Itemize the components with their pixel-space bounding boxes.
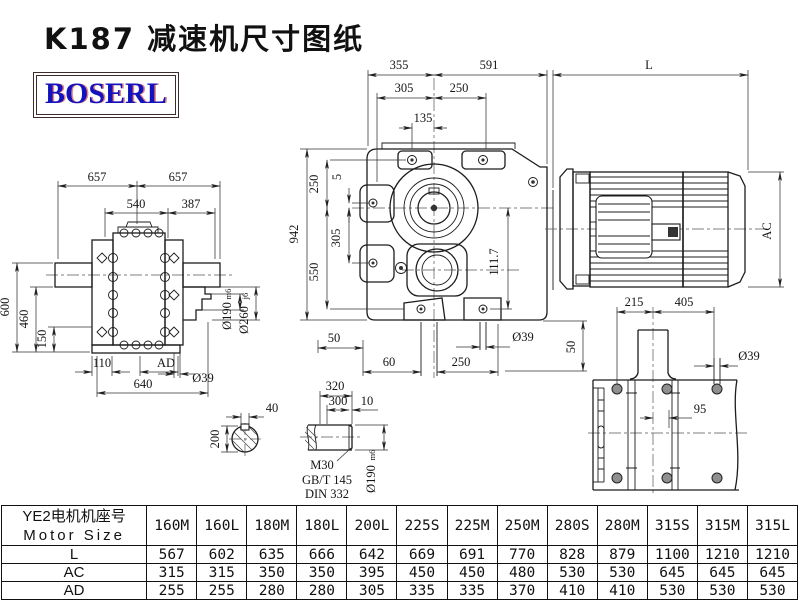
dim-150: 150 <box>35 330 49 349</box>
dim-460: 460 <box>17 310 31 329</box>
col-header-315M: 315M <box>697 506 747 546</box>
cell-L-225S: 669 <box>397 546 447 564</box>
dim-40: 40 <box>266 401 279 415</box>
row-header-AC: AC <box>2 564 147 582</box>
cell-AD-250M: 370 <box>497 582 547 600</box>
cell-AC-315M: 645 <box>697 564 747 582</box>
dim-540: 540 <box>127 197 146 211</box>
cell-AD-315L: 530 <box>747 582 797 600</box>
front-view-dimensions: 355 591 L 305 250 135 942 2 <box>287 58 748 376</box>
cell-L-160M: 567 <box>147 546 197 564</box>
row-header-L: L <box>2 546 147 564</box>
col-header-315S: 315S <box>647 506 697 546</box>
col-header-250M: 250M <box>497 506 547 546</box>
dim-657-left: 657 <box>88 170 107 184</box>
drawing-sheet: K187 减速机尺寸图纸 BOSERL <box>0 0 800 601</box>
dim-405: 405 <box>675 295 694 309</box>
dim-50-left: 50 <box>328 331 341 345</box>
dim-phi190-fit: m6 <box>223 289 233 300</box>
base-view: 215 405 Ø39 95 <box>588 295 760 496</box>
dim-135: 135 <box>414 111 433 125</box>
cell-AD-225S: 335 <box>397 582 447 600</box>
dim-305-vert: 305 <box>329 229 343 248</box>
dim-640: 640 <box>134 377 153 391</box>
cell-L-315M: 1210 <box>697 546 747 564</box>
cell-AD-200L: 305 <box>347 582 397 600</box>
cell-AC-180L: 350 <box>297 564 347 582</box>
left-view: 657 657 540 387 600 460 150 <box>0 170 260 397</box>
cell-L-280M: 879 <box>597 546 647 564</box>
cell-L-160L: 602 <box>197 546 247 564</box>
dim-300: 300 <box>329 394 348 408</box>
cell-AC-160M: 315 <box>147 564 197 582</box>
cell-AC-280M: 530 <box>597 564 647 582</box>
cell-AC-315L: 645 <box>747 564 797 582</box>
dim-550: 550 <box>307 263 321 282</box>
col-header-200L: 200L <box>347 506 397 546</box>
cell-AC-250M: 480 <box>497 564 547 582</box>
shaft-section-detail: 40 200 <box>208 401 278 460</box>
motor-dimensions: AC <box>748 172 784 287</box>
cell-AC-180M: 350 <box>247 564 297 582</box>
dim-200: 200 <box>208 430 222 449</box>
col-header-160L: 160L <box>197 506 247 546</box>
col-header-225M: 225M <box>447 506 497 546</box>
motor-size-header: YE2电机机座号Motor Size <box>2 506 147 546</box>
cell-AC-200L: 395 <box>347 564 397 582</box>
dim-250-vert: 250 <box>307 175 321 194</box>
col-header-180L: 180L <box>297 506 347 546</box>
shaft-end-dimensions: 320 300 10 M30 GB/T 145 DIN 332 Ø190 m6 <box>302 379 388 501</box>
dim-215: 215 <box>625 295 644 309</box>
cell-L-180L: 666 <box>297 546 347 564</box>
flange-bolt-scallops <box>109 229 170 349</box>
dim-50-right: 50 <box>564 341 578 354</box>
dim-250-top: 250 <box>450 81 469 95</box>
col-header-160M: 160M <box>147 506 197 546</box>
dim-387: 387 <box>182 197 201 211</box>
col-header-280M: 280M <box>597 506 647 546</box>
cell-AD-180L: 280 <box>297 582 347 600</box>
technical-drawing: 657 657 540 387 600 460 150 <box>0 0 800 505</box>
cell-AD-225M: 335 <box>447 582 497 600</box>
cell-AC-160L: 315 <box>197 564 247 582</box>
cell-AD-280M: 410 <box>597 582 647 600</box>
cell-AD-280S: 410 <box>547 582 597 600</box>
cell-AD-180M: 280 <box>247 582 297 600</box>
dim-phi39-base: Ø39 <box>738 349 760 363</box>
label-gbt145: GB/T 145 <box>302 473 352 487</box>
label-thread-m30: M30 <box>310 458 334 472</box>
dim-phi190: Ø190 <box>220 302 234 330</box>
dim-phi39-front: Ø39 <box>512 330 534 344</box>
dim-L: L <box>645 58 653 72</box>
cell-AC-280S: 530 <box>547 564 597 582</box>
cell-L-250M: 770 <box>497 546 547 564</box>
cell-AD-315M: 530 <box>697 582 747 600</box>
col-header-280S: 280S <box>547 506 597 546</box>
col-header-180M: 180M <box>247 506 297 546</box>
dim-phi260-fit: j6 <box>240 293 250 301</box>
dim-5: 5 <box>330 174 344 180</box>
shaft-end-detail: 320 300 10 M30 GB/T 145 DIN 332 Ø190 m6 <box>300 379 388 501</box>
cell-L-225M: 691 <box>447 546 497 564</box>
dim-phi260: Ø260 <box>237 306 251 334</box>
cell-AD-160M: 255 <box>147 582 197 600</box>
label-din332: DIN 332 <box>305 487 349 501</box>
row-header-AD: AD <box>2 582 147 600</box>
dim-110: 110 <box>93 356 111 370</box>
dim-95: 95 <box>694 402 707 416</box>
dim-942: 942 <box>287 225 301 244</box>
cell-AC-225M: 450 <box>447 564 497 582</box>
cell-L-200L: 642 <box>347 546 397 564</box>
cell-AD-315S: 530 <box>647 582 697 600</box>
dim-phi190-shaft-fit: m6 <box>367 450 377 461</box>
cell-AC-315S: 645 <box>647 564 697 582</box>
dim-phi39-left-view: Ø39 <box>192 371 214 385</box>
cell-L-315L: 1210 <box>747 546 797 564</box>
dim-355: 355 <box>390 58 409 72</box>
dim-250-bottom: 250 <box>452 355 471 369</box>
cell-L-315S: 1100 <box>647 546 697 564</box>
dim-AD: AD <box>157 356 175 370</box>
dim-305-top: 305 <box>395 81 414 95</box>
size-table: YE2电机机座号Motor Size160M160L180M180L200L22… <box>1 505 798 600</box>
dim-320: 320 <box>326 379 345 393</box>
dim-591: 591 <box>480 58 499 72</box>
front-view: 355 591 L 305 250 135 942 2 <box>287 58 748 378</box>
col-header-225S: 225S <box>397 506 447 546</box>
dim-60: 60 <box>383 355 396 369</box>
dim-111-7: 111.7 <box>487 248 501 275</box>
cell-AD-160L: 255 <box>197 582 247 600</box>
dim-phi190-shaft: Ø190 <box>364 465 378 493</box>
flange-bolt-diamonds <box>97 253 179 337</box>
col-header-315L: 315L <box>747 506 797 546</box>
cell-L-280S: 828 <box>547 546 597 564</box>
cell-L-180M: 635 <box>247 546 297 564</box>
cell-AC-225S: 450 <box>397 564 447 582</box>
dim-10: 10 <box>361 394 374 408</box>
dim-657-right: 657 <box>169 170 188 184</box>
left-view-dimensions: 657 657 540 387 600 460 150 <box>0 170 260 397</box>
dim-AC: AC <box>760 222 774 239</box>
dim-600: 600 <box>0 298 12 317</box>
motor-view: AC <box>545 169 784 289</box>
